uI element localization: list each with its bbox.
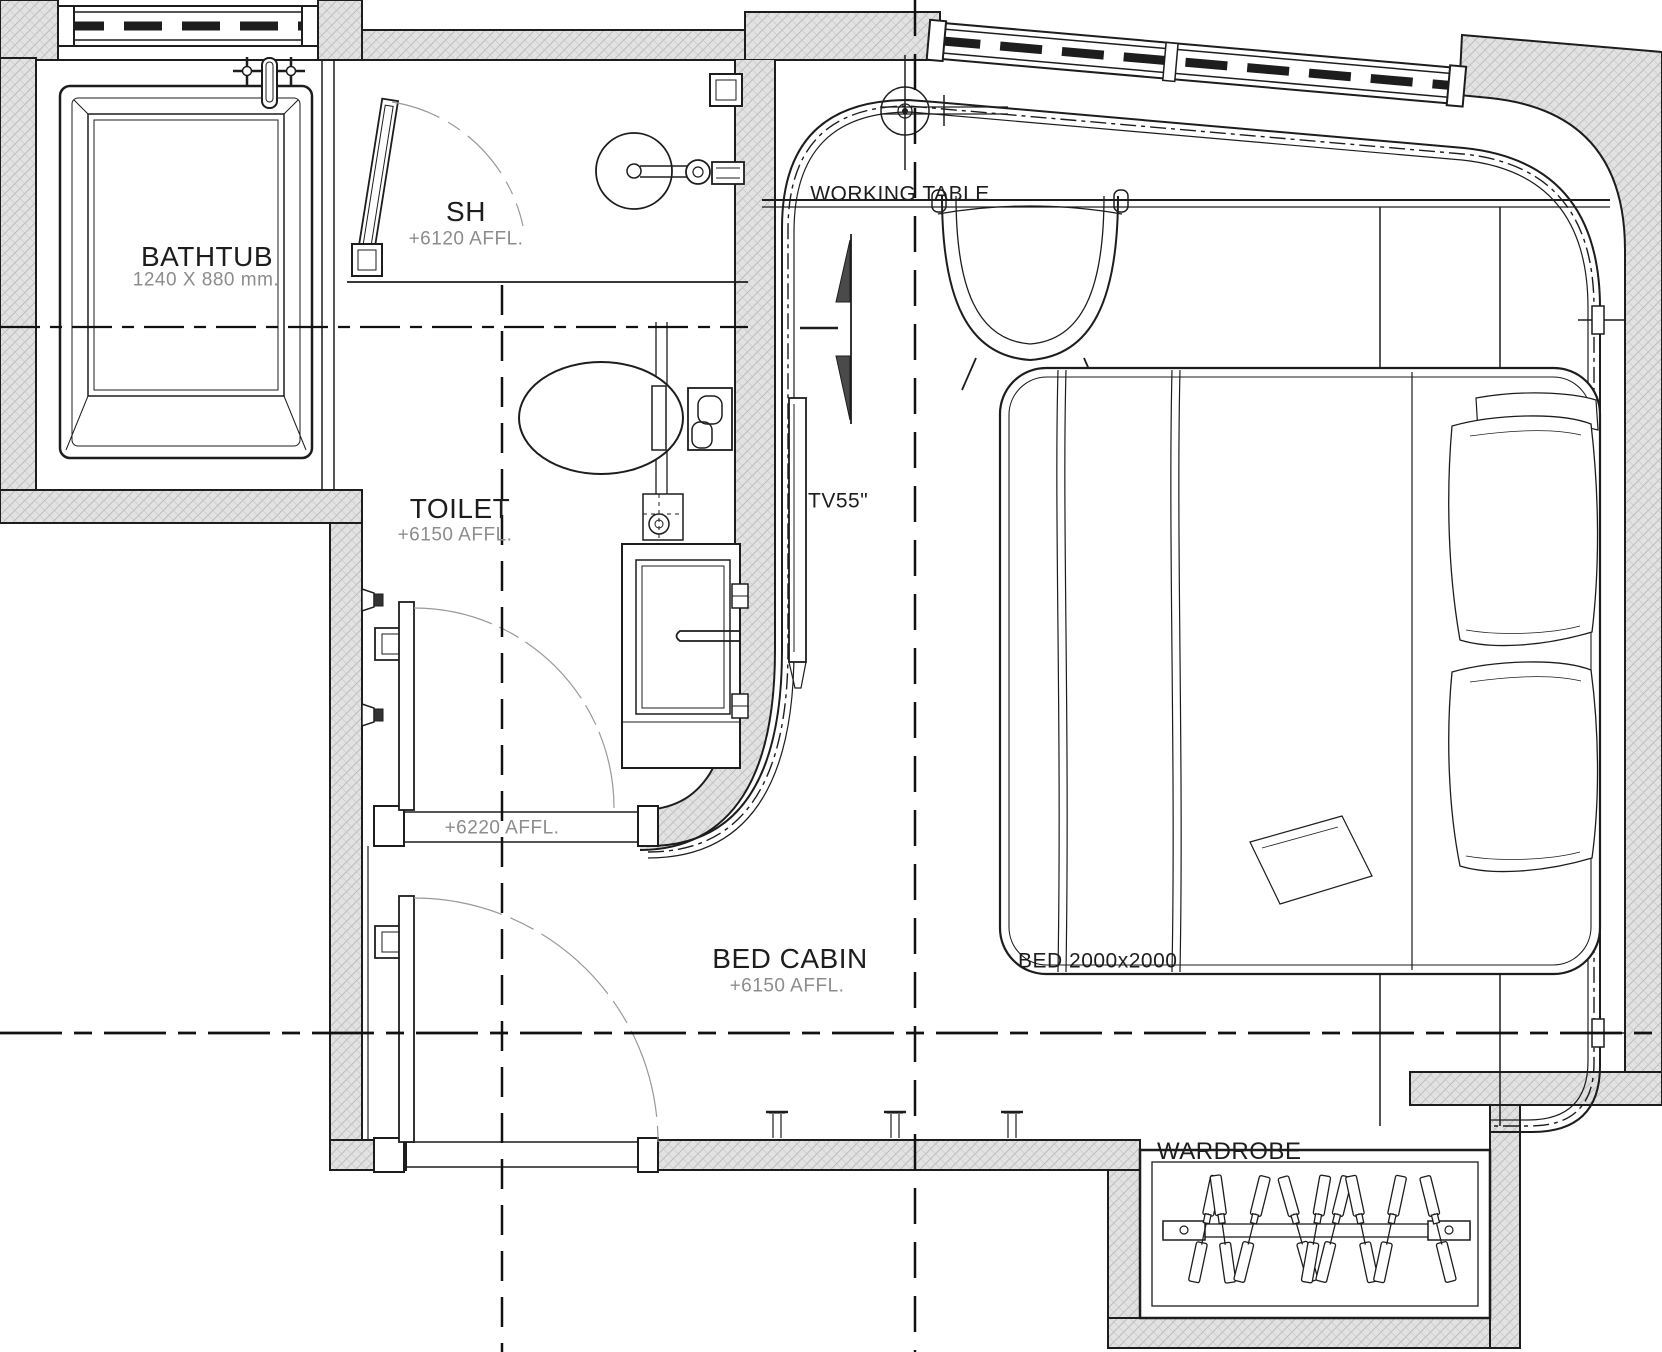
- window-glass-dashes: [938, 41, 1455, 86]
- bed-label: BED 2000x2000: [1018, 951, 1177, 972]
- tv-screen: [789, 398, 806, 688]
- shower-head-icon: [596, 133, 744, 209]
- toilet-flush-panel: [688, 388, 732, 450]
- bottom-wall-hooks: [766, 1112, 1023, 1138]
- shower-level-label: +6120 AFFL.: [409, 230, 524, 249]
- working-table-label: WORKING TABLE: [810, 184, 990, 205]
- bedcabin-window: [927, 20, 1466, 107]
- toilet-fixture: [519, 322, 732, 540]
- wall-top-window-jamb: [318, 0, 362, 60]
- floor-plan-canvas: BATHTUB 1240 X 880 mm. SH +6120 AFFL. TO…: [0, 0, 1662, 1352]
- wall-socket-icon: [1592, 306, 1604, 334]
- shower-ceiling-box: [710, 74, 742, 106]
- bed-cabin-level-label: +6150 AFFL.: [730, 977, 845, 996]
- swing-arrow-icon: [836, 356, 850, 420]
- toilet-label: TOILET: [410, 495, 511, 523]
- bedcabin-door: [375, 896, 658, 1142]
- wardrobe-label: WARDROBE: [1157, 1140, 1301, 1164]
- door-swing-arc: [414, 608, 614, 808]
- wall-left-bathtub: [0, 58, 36, 523]
- wall-peg-icon: [1001, 1112, 1023, 1138]
- wall-peg-icon: [884, 1112, 906, 1138]
- wall-top-left-corner: [0, 0, 58, 60]
- door-threshold-label: +6220 AFFL.: [445, 819, 560, 838]
- wall-peg-icon: [766, 1112, 788, 1138]
- wall-bottom-right-band: [1410, 1072, 1662, 1105]
- shower-door-hinge: [352, 244, 382, 276]
- toilet-paper-holder-icon: [643, 494, 683, 540]
- bed: [1000, 368, 1600, 974]
- wardrobe: [1140, 1150, 1490, 1318]
- desk-chair: [932, 190, 1128, 390]
- bathtub-window: [58, 6, 318, 46]
- wall-bathtub-bottom: [0, 490, 362, 523]
- bathtub-size-label: 1240 X 880 mm.: [133, 271, 279, 290]
- shower-area: [347, 74, 748, 282]
- toilet-level-label: +6150 AFFL.: [398, 526, 513, 545]
- bathtub-label: BATHTUB: [141, 243, 273, 271]
- wall-top-bedcabin: [745, 12, 940, 60]
- doors: [374, 602, 658, 1172]
- towel-hook-icon: [362, 589, 383, 611]
- towel-hook-icon: [362, 704, 383, 726]
- wall-wardrobe-right: [1490, 1105, 1520, 1348]
- wall-bottom-middle: [648, 1140, 1140, 1170]
- wall-wardrobe-bottom: [1108, 1318, 1520, 1348]
- tv-label: TV55": [808, 491, 868, 512]
- wall-top-toilet: [362, 30, 745, 60]
- wall-left-lower: [330, 523, 362, 1170]
- toilet-door: [375, 602, 614, 810]
- vanity-sink: [622, 544, 748, 768]
- shower-label: SH: [446, 198, 486, 226]
- wall-hooks: [362, 589, 383, 726]
- bed-cabin-label: BED CABIN: [712, 945, 867, 973]
- door-swing-arc: [414, 898, 658, 1142]
- door-direction-arrows: [800, 234, 851, 424]
- swing-arrow-icon: [836, 240, 850, 302]
